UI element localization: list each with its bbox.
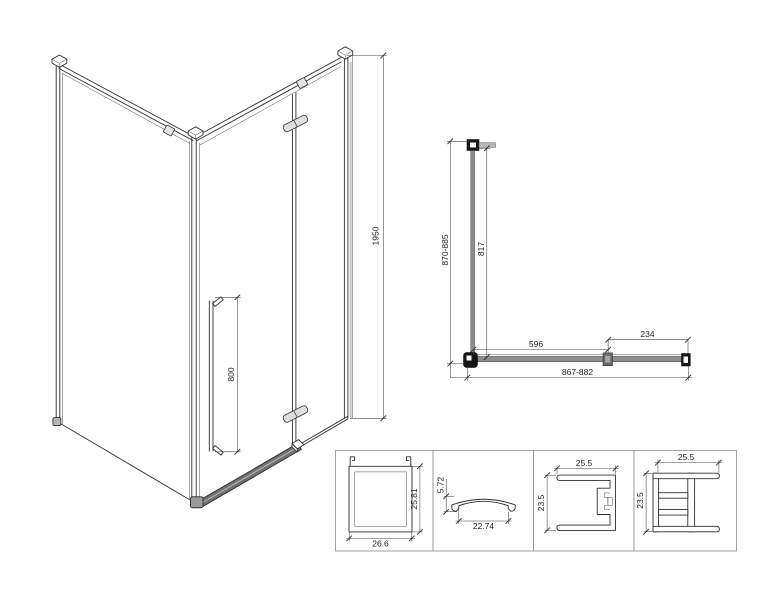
dim-label-26.6: 26.6: [372, 539, 389, 549]
dim-label-817: 817: [476, 242, 486, 256]
profile-wall: 25.5 23.5: [536, 458, 619, 533]
corner-cap-right: [338, 47, 353, 59]
technical-drawing-canvas: 800 1950: [0, 0, 776, 600]
dim-glass-817: 817: [476, 146, 490, 361]
dim-profile4-width: 25.5: [655, 452, 722, 472]
dim-depth-870-885: 870-885: [440, 139, 469, 378]
dim-profile3-width: 25.5: [554, 458, 619, 474]
rail-bracket-right: [296, 77, 308, 88]
profile-threshold-cover: 5.72 22.74: [436, 476, 516, 531]
dim-label-800: 800: [226, 367, 236, 381]
plan-hinge: [603, 353, 613, 366]
dim-label-22.74: 22.74: [473, 521, 495, 531]
left-wall-foot: [53, 418, 61, 426]
dim-profile1-height: 25.81: [409, 464, 423, 535]
dim-label-p4-25.5: 25.5: [678, 452, 695, 462]
plan-top-bracket: [467, 140, 496, 151]
dim-profile4-height: 23.5: [635, 471, 652, 535]
plan-view: 870-885 817 596 234: [440, 139, 692, 381]
isometric-view: 800 1950: [52, 47, 387, 508]
profile-glass-channel: 26.6 25.81: [346, 457, 423, 549]
plan-front-glass: [467, 356, 682, 361]
dim-label-234: 234: [640, 329, 654, 339]
dim-profile2-width: 22.74: [456, 509, 512, 531]
dim-height-1950: 1950: [347, 53, 387, 421]
profile-door-frame: 25.5 23.5: [635, 452, 722, 534]
dim-label-p4-23.5: 23.5: [635, 492, 645, 509]
plan-corner-fitting: [464, 353, 478, 368]
shower-enclosure-drawing: 800 1950: [0, 0, 776, 600]
dim-label-867-882: 867-882: [562, 367, 593, 377]
corner-cap-left: [52, 55, 67, 67]
dim-label-870-885: 870-885: [440, 234, 450, 265]
profile-box-4: [634, 451, 737, 552]
corner-foot: [190, 497, 203, 508]
dim-label-p3-23.5: 23.5: [536, 494, 546, 511]
dim-panel-234: 234: [605, 329, 690, 354]
dim-door-596: 596: [471, 339, 612, 355]
dim-label-25.81: 25.81: [409, 488, 419, 510]
door-handle: [209, 297, 223, 455]
dim-handle-800: 800: [215, 295, 241, 455]
dim-profile3-height: 23.5: [536, 472, 556, 533]
plan-right-bracket: [682, 354, 691, 367]
corner-cap-middle: [188, 127, 203, 139]
dim-profile1-width: 26.6: [346, 532, 415, 549]
dim-label-596: 596: [529, 339, 543, 349]
profile-sections: 26.6 25.81 5.72: [336, 451, 737, 552]
dim-label-5.72: 5.72: [436, 476, 446, 493]
dim-label-p3-25.5: 25.5: [576, 458, 593, 468]
plan-side-glass: [471, 151, 475, 358]
dim-label-1950: 1950: [371, 226, 381, 245]
dim-width-867-882: 867-882: [450, 366, 692, 381]
